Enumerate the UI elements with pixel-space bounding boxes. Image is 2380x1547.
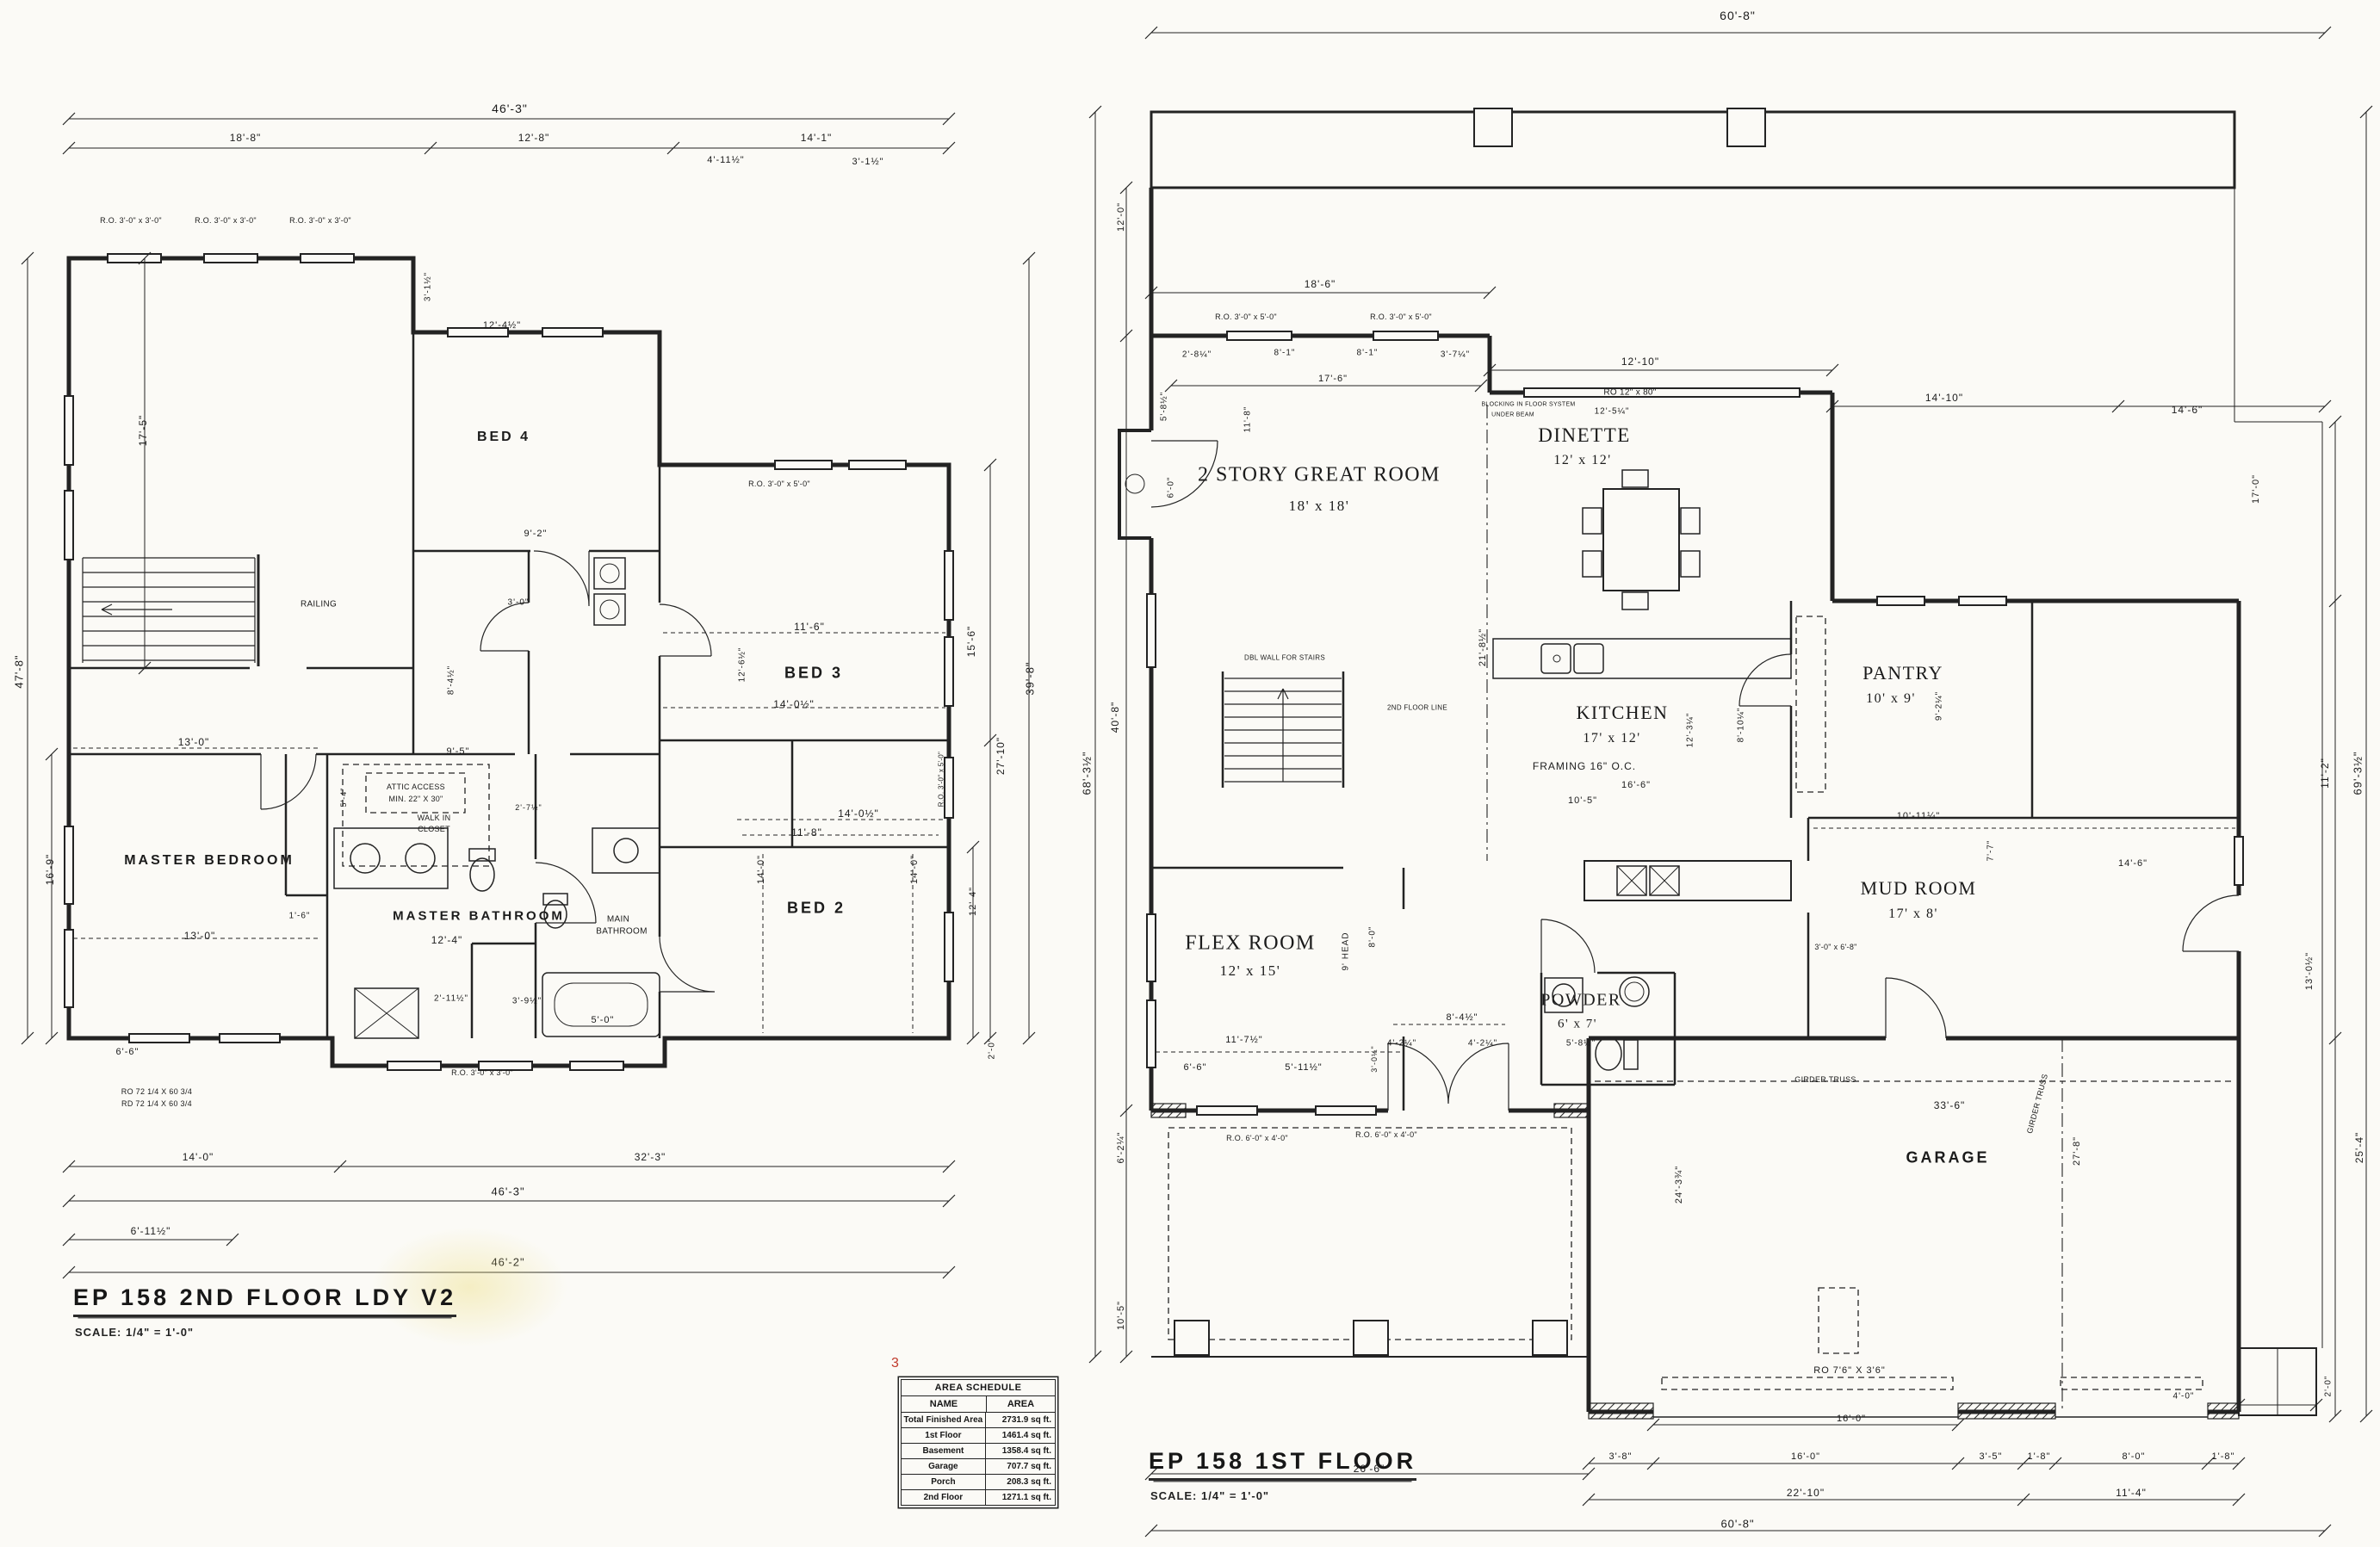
dim-label: 2'-11½" xyxy=(434,994,468,1004)
dim-label: 3'-0" x 6'-8" xyxy=(1814,943,1856,951)
dim-label: 8'-0" xyxy=(1368,926,1378,948)
dim-label: 27'-10" xyxy=(995,737,1007,775)
area-schedule-header: NAME AREA xyxy=(902,1396,1055,1413)
dim-label: 8'-4½" xyxy=(1446,1012,1478,1023)
dim-label: 4'-2¼" xyxy=(1468,1039,1497,1049)
dim-label: 12'-0" xyxy=(1116,202,1126,232)
dim-label: BLOCKING IN FLOOR SYSTEM xyxy=(1481,402,1575,408)
dim-label: 14'-0½" xyxy=(838,808,879,820)
room-label-bed-4: BED 4 xyxy=(477,430,530,445)
dim-label: 6'-0" xyxy=(1167,477,1176,498)
dim-label: 12'-4" xyxy=(431,934,463,946)
dim-label: 11'-6" xyxy=(794,621,825,633)
dim-label: 3'-7¼" xyxy=(1441,350,1470,360)
table-row: Total Finished Area 2731.9 sq ft. xyxy=(902,1413,1055,1428)
room-label-powder: POWDER xyxy=(1540,991,1621,1011)
dim-label: 3'-9½" xyxy=(512,997,542,1006)
room-size-flex-room: 12' x 15' xyxy=(1220,962,1281,980)
dim-label: MIN. 22" X 30" xyxy=(388,795,443,803)
dim-label: 3'-1½" xyxy=(424,272,433,301)
dim-label: 12'-3¼" xyxy=(1686,713,1695,748)
dim-label: R.O. 3'-0" x 5'-0" xyxy=(748,480,810,488)
dim-label: GIRDER TRUSS xyxy=(1794,1075,1856,1084)
dim-label: 16'-6" xyxy=(1621,780,1651,790)
dim-label: 12'-10" xyxy=(1621,356,1659,368)
drawing-sheet: 46'-3"18'-8"12'-8"14'-1"4'-11½"3'-1½"R.O… xyxy=(0,0,2380,1547)
room-size-powder: 6' x 7' xyxy=(1558,1018,1597,1032)
dim-label: 6'-2¼" xyxy=(1116,1131,1126,1163)
schedule-name-cell: 2nd Floor xyxy=(902,1490,986,1505)
column-header-area: AREA xyxy=(987,1396,1055,1412)
dim-label: 9'-5" xyxy=(447,746,470,757)
dim-label: R.O. 6'-0" x 4'-0" xyxy=(1226,1134,1288,1142)
dim-label: 4'-2¼" xyxy=(1387,1039,1416,1049)
dim-label: 5'-8½" xyxy=(1160,392,1169,421)
dim-label: GIRDER TRUSS xyxy=(2025,1073,2049,1135)
dim-label: 11'-4" xyxy=(2116,1487,2147,1499)
dim-label: 47'-8" xyxy=(13,654,26,688)
area-schedule-table: AREA SCHEDULE NAME AREA Total Finished A… xyxy=(901,1379,1056,1506)
dim-label: WALK IN xyxy=(418,814,451,822)
dim-label: 60'-8" xyxy=(1720,1518,1754,1531)
dim-label: 25'-4" xyxy=(2353,1132,2365,1164)
schedule-name-cell: 1st Floor xyxy=(902,1428,986,1443)
dim-label: 14'-0½" xyxy=(773,698,815,710)
dim-label: 12'-5¼" xyxy=(1595,407,1630,417)
dim-label: 6'-6" xyxy=(116,1047,139,1057)
plan-title-second-floor: EP 158 2ND FLOOR LDY V2 xyxy=(73,1284,456,1317)
dim-label: RO 72 1/4 X 60 3/4 xyxy=(121,1087,192,1096)
room-size-dinette: 12' x 12' xyxy=(1553,453,1611,468)
table-row: Garage 707.7 sq ft. xyxy=(902,1459,1055,1475)
dim-label: 68'-3½" xyxy=(1081,752,1094,795)
dim-label: 46'-3" xyxy=(492,102,528,115)
schedule-area-cell: 1358.4 sq ft. xyxy=(986,1444,1055,1458)
schedule-area-cell: 1271.1 sq ft. xyxy=(986,1490,1055,1505)
dim-label: R.O. 3'-0" x 5'-0" xyxy=(938,752,945,807)
dim-label: 9'-2" xyxy=(524,529,548,539)
dim-label: CLOSET xyxy=(418,825,450,833)
dim-label: RO 12" x 80" xyxy=(1603,388,1656,398)
dim-label: R.O. 3'-0" x 3'-0" xyxy=(289,216,351,225)
dim-label: 17'-6" xyxy=(1318,374,1348,384)
dim-label: 12'-8" xyxy=(518,132,550,144)
dim-label: 1'-8" xyxy=(2212,1451,2235,1462)
dim-label: 9'-2¼" xyxy=(1935,691,1944,721)
dim-label: 12'-6½" xyxy=(738,647,747,683)
dim-label: RAILING xyxy=(301,600,337,610)
dim-label: R.O. 3'-0" x 5'-0" xyxy=(1370,312,1432,321)
revision-mark: 3 xyxy=(891,1356,900,1371)
dim-label: 13'-0" xyxy=(178,736,210,748)
dim-label: 8'-1" xyxy=(1274,349,1296,358)
dim-label: 4'-0" xyxy=(2173,1392,2195,1402)
dim-label: 39'-8" xyxy=(1024,661,1037,695)
area-schedule-title: AREA SCHEDULE xyxy=(902,1380,1055,1396)
table-row: Basement 1358.4 sq ft. xyxy=(902,1444,1055,1459)
schedule-name-cell: Porch xyxy=(902,1475,986,1489)
dim-label: 2'-0" xyxy=(2324,1376,2334,1397)
dim-label: 6'-6" xyxy=(1184,1062,1207,1073)
dim-label: R.O. 3'-0" x 3'-0" xyxy=(100,216,162,225)
room-label-bed-3: BED 3 xyxy=(784,665,843,683)
dim-label: 12'-4" xyxy=(968,887,978,916)
dim-label: R.O. 6'-0" x 4'-0" xyxy=(1355,1130,1417,1139)
dim-label: 14'-10" xyxy=(1925,392,1963,404)
dim-label: BATHROOM xyxy=(596,927,647,937)
dim-label: 18'-6" xyxy=(1305,278,1336,290)
dim-label: 8'-10¼" xyxy=(1737,708,1746,743)
dim-label: 24'-3¾" xyxy=(1674,1166,1684,1204)
room-size-kitchen: 17' x 12' xyxy=(1583,731,1640,746)
room-label-great-room: 2 STORY GREAT ROOM xyxy=(1198,464,1441,487)
schedule-name-cell: Total Finished Area xyxy=(902,1413,986,1427)
dim-label: 10'-11¼" xyxy=(1897,811,1941,821)
room-label-dinette: DINETTE xyxy=(1538,424,1631,447)
dim-label: 8'-4½" xyxy=(447,665,456,695)
dim-label: 3'-1½" xyxy=(852,157,883,167)
dim-label: 5'-0" xyxy=(592,1015,615,1025)
dim-label: 2'-7½" xyxy=(515,803,542,812)
schedule-area-cell: 2731.9 sq ft. xyxy=(986,1413,1055,1427)
dim-label: 5'-8½" xyxy=(1566,1039,1596,1049)
dim-label: R.O. 3'-0" x 3'-0" xyxy=(195,216,257,225)
room-size-great-room: 18' x 18' xyxy=(1289,498,1350,515)
table-row: 1st Floor 1461.4 sq ft. xyxy=(902,1428,1055,1444)
dim-label: 9' HEAD xyxy=(1342,931,1351,970)
table-row: Porch 208.3 sq ft. xyxy=(902,1475,1055,1490)
plan-title-first-floor: EP 158 1ST FLOOR xyxy=(1149,1448,1416,1481)
dim-label: 14'-1" xyxy=(801,132,833,144)
dim-label: 3'-0¼" xyxy=(1370,1045,1379,1072)
dim-label: 3'-5" xyxy=(1980,1451,2003,1462)
dim-label: 32'-3" xyxy=(635,1151,666,1163)
room-label-bed-2: BED 2 xyxy=(787,900,846,918)
dim-label: 14'-0" xyxy=(756,855,766,884)
dim-label: 13'-0" xyxy=(184,930,216,942)
dim-label: 10'-5" xyxy=(1568,795,1597,806)
room-label-garage: GARAGE xyxy=(1906,1149,1989,1167)
dim-label: 2ND FLOOR LINE xyxy=(1387,704,1447,712)
schedule-area-cell: 707.7 sq ft. xyxy=(986,1459,1055,1474)
schedule-area-cell: 1461.4 sq ft. xyxy=(986,1428,1055,1443)
column-header-name: NAME xyxy=(902,1396,987,1412)
dim-label: 16'-0" xyxy=(1791,1451,1820,1462)
dim-label: 14'-0" xyxy=(183,1151,214,1163)
room-label-master-bedroom: MASTER BEDROOM xyxy=(124,853,294,869)
dim-label: 5'-4" xyxy=(339,788,348,808)
dim-label: 33'-6" xyxy=(1934,1099,1966,1111)
dim-label: 5'-11½" xyxy=(1285,1062,1322,1073)
scale-note-second-floor: SCALE: 1/4" = 1'-0" xyxy=(75,1326,194,1339)
room-size-mud-room: 17' x 8' xyxy=(1888,907,1938,922)
dim-label: FRAMING 16" O.C. xyxy=(1533,760,1636,772)
schedule-name-cell: Garage xyxy=(902,1459,986,1474)
dim-label: R.O. 3'-0" x 3'-0" xyxy=(451,1068,513,1077)
dim-label: 7'-7" xyxy=(1986,840,1996,862)
room-label-pantry: PANTRY xyxy=(1862,662,1943,684)
room-label-flex-room: FLEX ROOM xyxy=(1185,932,1316,956)
dim-label: 1'-6" xyxy=(289,912,311,921)
dim-label: 2'-0" xyxy=(988,1038,997,1060)
dim-label: 27'-8" xyxy=(2072,1136,2082,1166)
schedule-area-cell: 208.3 sq ft. xyxy=(986,1475,1055,1489)
dim-label: 11'-2" xyxy=(2319,758,2331,789)
dim-label: R.O. 3'-0" x 5'-0" xyxy=(1215,312,1277,321)
dim-label: 4'-11½" xyxy=(707,155,744,165)
dim-label: RO 7'6" X 3'6" xyxy=(1813,1365,1886,1376)
dim-label: 11'-8" xyxy=(791,826,822,838)
dim-label: 14'-0" xyxy=(909,855,920,884)
dim-label: 15'-6" xyxy=(965,626,977,658)
dim-label: UNDER BEAM xyxy=(1491,412,1534,418)
dim-label: RD 72 1/4 X 60 3/4 xyxy=(121,1099,192,1108)
room-label-kitchen: KITCHEN xyxy=(1576,702,1668,724)
dim-label: 3'-0" xyxy=(508,598,530,608)
dim-label: 6'-11½" xyxy=(131,1225,171,1237)
dim-label: 17'-5" xyxy=(137,415,149,447)
dim-label: 2'-8¼" xyxy=(1182,350,1212,360)
dim-label: DBL WALL FOR STAIRS xyxy=(1244,654,1325,662)
dim-label: 60'-8" xyxy=(1720,9,1756,22)
room-label-main-bathroom: MAIN xyxy=(607,915,629,925)
dim-label: 18'-8" xyxy=(230,132,262,144)
scale-note-first-floor: SCALE: 1/4" = 1'-0" xyxy=(1150,1489,1269,1502)
dim-label: 14'-6" xyxy=(2172,404,2203,416)
room-label-mud-room: MUD ROOM xyxy=(1861,877,1977,900)
dim-label: 14'-6" xyxy=(2118,858,2148,869)
dim-label: 8'-0" xyxy=(2123,1451,2146,1462)
dim-label: 16'-0" xyxy=(1837,1414,1866,1424)
room-size-pantry: 10' x 9' xyxy=(1866,691,1916,707)
dim-label: 17'-0" xyxy=(2251,474,2261,504)
table-row: 2nd Floor 1271.1 sq ft. xyxy=(902,1490,1055,1505)
dim-label: 46'-3" xyxy=(491,1185,524,1198)
dim-label: 11'-7½" xyxy=(1225,1035,1262,1045)
dim-label: ATTIC ACCESS xyxy=(387,783,445,791)
dim-label: 11'-8" xyxy=(1243,406,1253,433)
dim-label: 22'-10" xyxy=(1787,1487,1825,1499)
room-label-master-bathroom: MASTER BATHROOM xyxy=(393,909,565,924)
dim-label: 3'-8" xyxy=(1609,1451,1633,1462)
dim-label: 16'-9" xyxy=(44,854,56,886)
schedule-name-cell: Basement xyxy=(902,1444,986,1458)
dim-label: 1'-8" xyxy=(2028,1451,2051,1462)
dim-label: 21'-8½" xyxy=(1478,628,1488,666)
dim-label: 12'-4½" xyxy=(483,320,521,331)
dim-label: 8'-1" xyxy=(1357,349,1379,358)
dim-label: 69'-3½" xyxy=(2352,752,2365,795)
dim-label: 13'-0½" xyxy=(2304,952,2315,990)
dim-label: 10'-5" xyxy=(1116,1301,1126,1330)
dim-label: 40'-8" xyxy=(1109,702,1121,733)
